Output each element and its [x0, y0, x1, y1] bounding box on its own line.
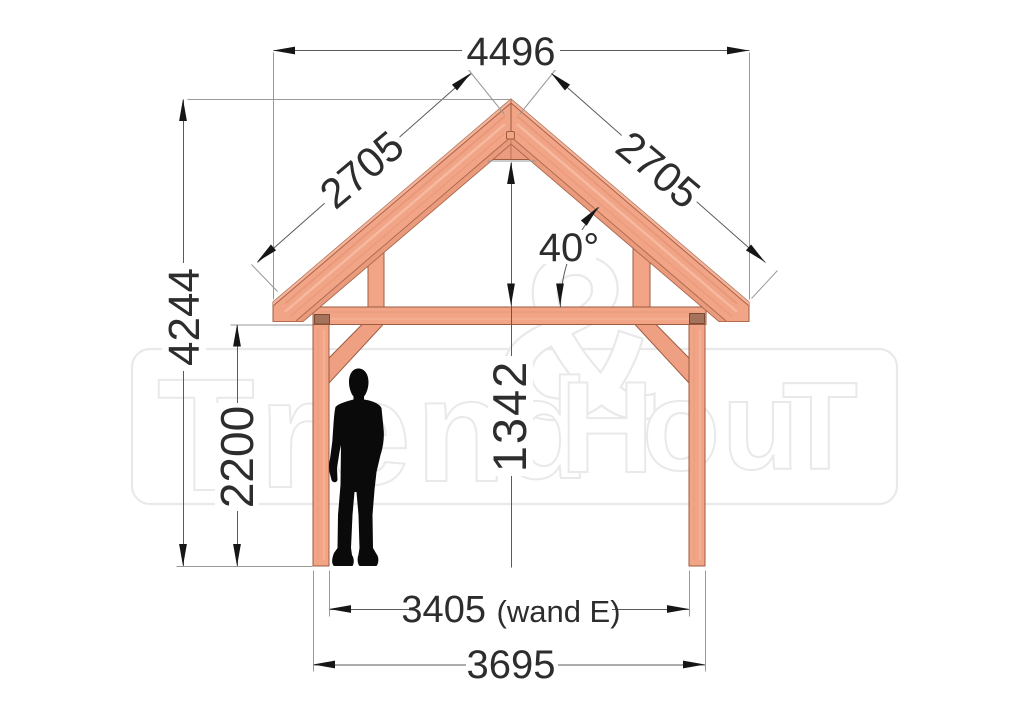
svg-text:o: o — [642, 355, 720, 498]
svg-text:4496: 4496 — [467, 30, 556, 74]
svg-text:3695: 3695 — [467, 643, 556, 687]
svg-text:2200: 2200 — [211, 406, 263, 508]
svg-text:3405 (wand E): 3405 (wand E) — [401, 589, 620, 631]
svg-text:4244: 4244 — [160, 268, 209, 366]
svg-text:1342: 1342 — [483, 360, 536, 473]
svg-text:T: T — [782, 358, 858, 496]
svg-text:r: r — [259, 347, 319, 520]
svg-text:H: H — [560, 354, 654, 500]
svg-text:40°: 40° — [539, 226, 600, 270]
